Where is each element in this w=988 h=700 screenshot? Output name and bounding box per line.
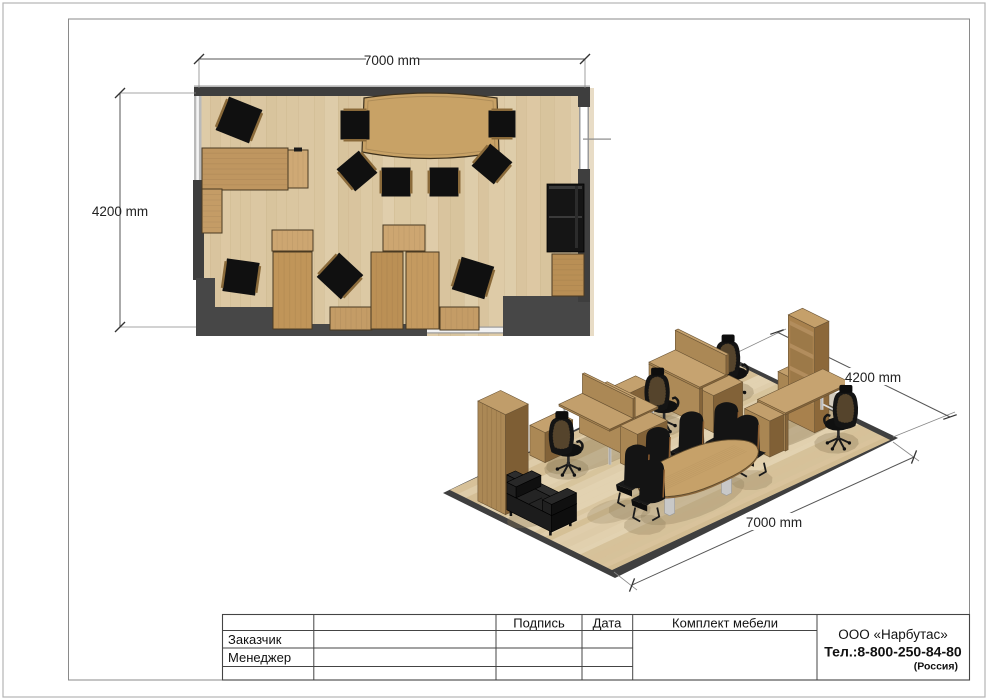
- svg-text:Тел.:8-800-250-84-80: Тел.:8-800-250-84-80: [824, 644, 962, 660]
- svg-text:7000 mm: 7000 mm: [746, 515, 802, 530]
- svg-text:(Россия): (Россия): [914, 661, 958, 673]
- svg-text:Подпись: Подпись: [513, 616, 565, 631]
- svg-text:4200 mm: 4200 mm: [845, 370, 901, 385]
- svg-text:4200 mm: 4200 mm: [92, 204, 148, 219]
- svg-text:ООО «Нарбутас»: ООО «Нарбутас»: [838, 627, 948, 642]
- svg-text:Дата: Дата: [593, 616, 623, 631]
- svg-text:Комплект мебели: Комплект мебели: [672, 616, 778, 631]
- svg-text:Менеджер: Менеджер: [228, 650, 291, 665]
- svg-text:7000 mm: 7000 mm: [364, 53, 420, 68]
- svg-text:Заказчик: Заказчик: [228, 632, 282, 647]
